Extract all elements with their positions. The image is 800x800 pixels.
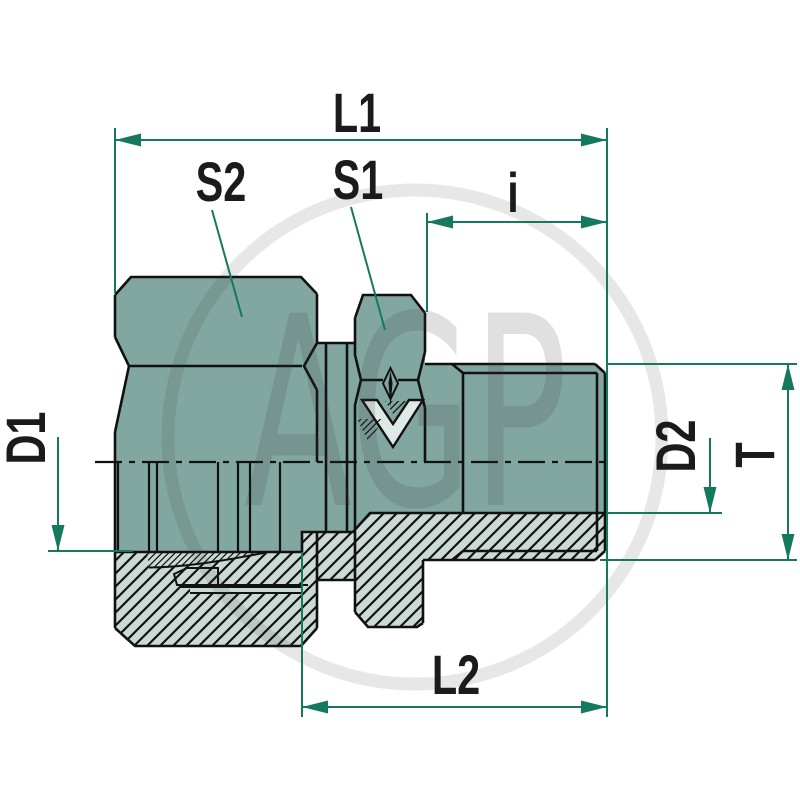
arrow-right-icon	[581, 701, 607, 714]
label-S2: S2	[196, 151, 247, 214]
arrow-up-icon	[782, 364, 795, 390]
label-D2: D2	[645, 420, 708, 473]
fitting-technical-drawing: AGP	[0, 0, 800, 800]
arrow-left-icon	[302, 701, 328, 714]
arrow-down-icon	[704, 487, 717, 513]
arrow-down-icon	[52, 525, 65, 551]
arrow-left-icon	[115, 134, 141, 147]
arrow-right-icon	[581, 216, 607, 229]
label-T: T	[724, 442, 787, 467]
label-L1: L1	[333, 82, 381, 145]
arrow-left-icon	[427, 216, 453, 229]
technical-drawing-page: AGP	[0, 0, 800, 800]
thread-gap-strip	[190, 588, 302, 593]
label-i: i	[507, 162, 519, 225]
label-L2: L2	[432, 644, 480, 707]
arrow-right-icon	[581, 134, 607, 147]
arrow-down-icon	[782, 534, 795, 560]
label-S1: S1	[333, 149, 384, 212]
label-D1: D1	[0, 412, 58, 465]
watermark-text: AGP	[244, 261, 568, 568]
